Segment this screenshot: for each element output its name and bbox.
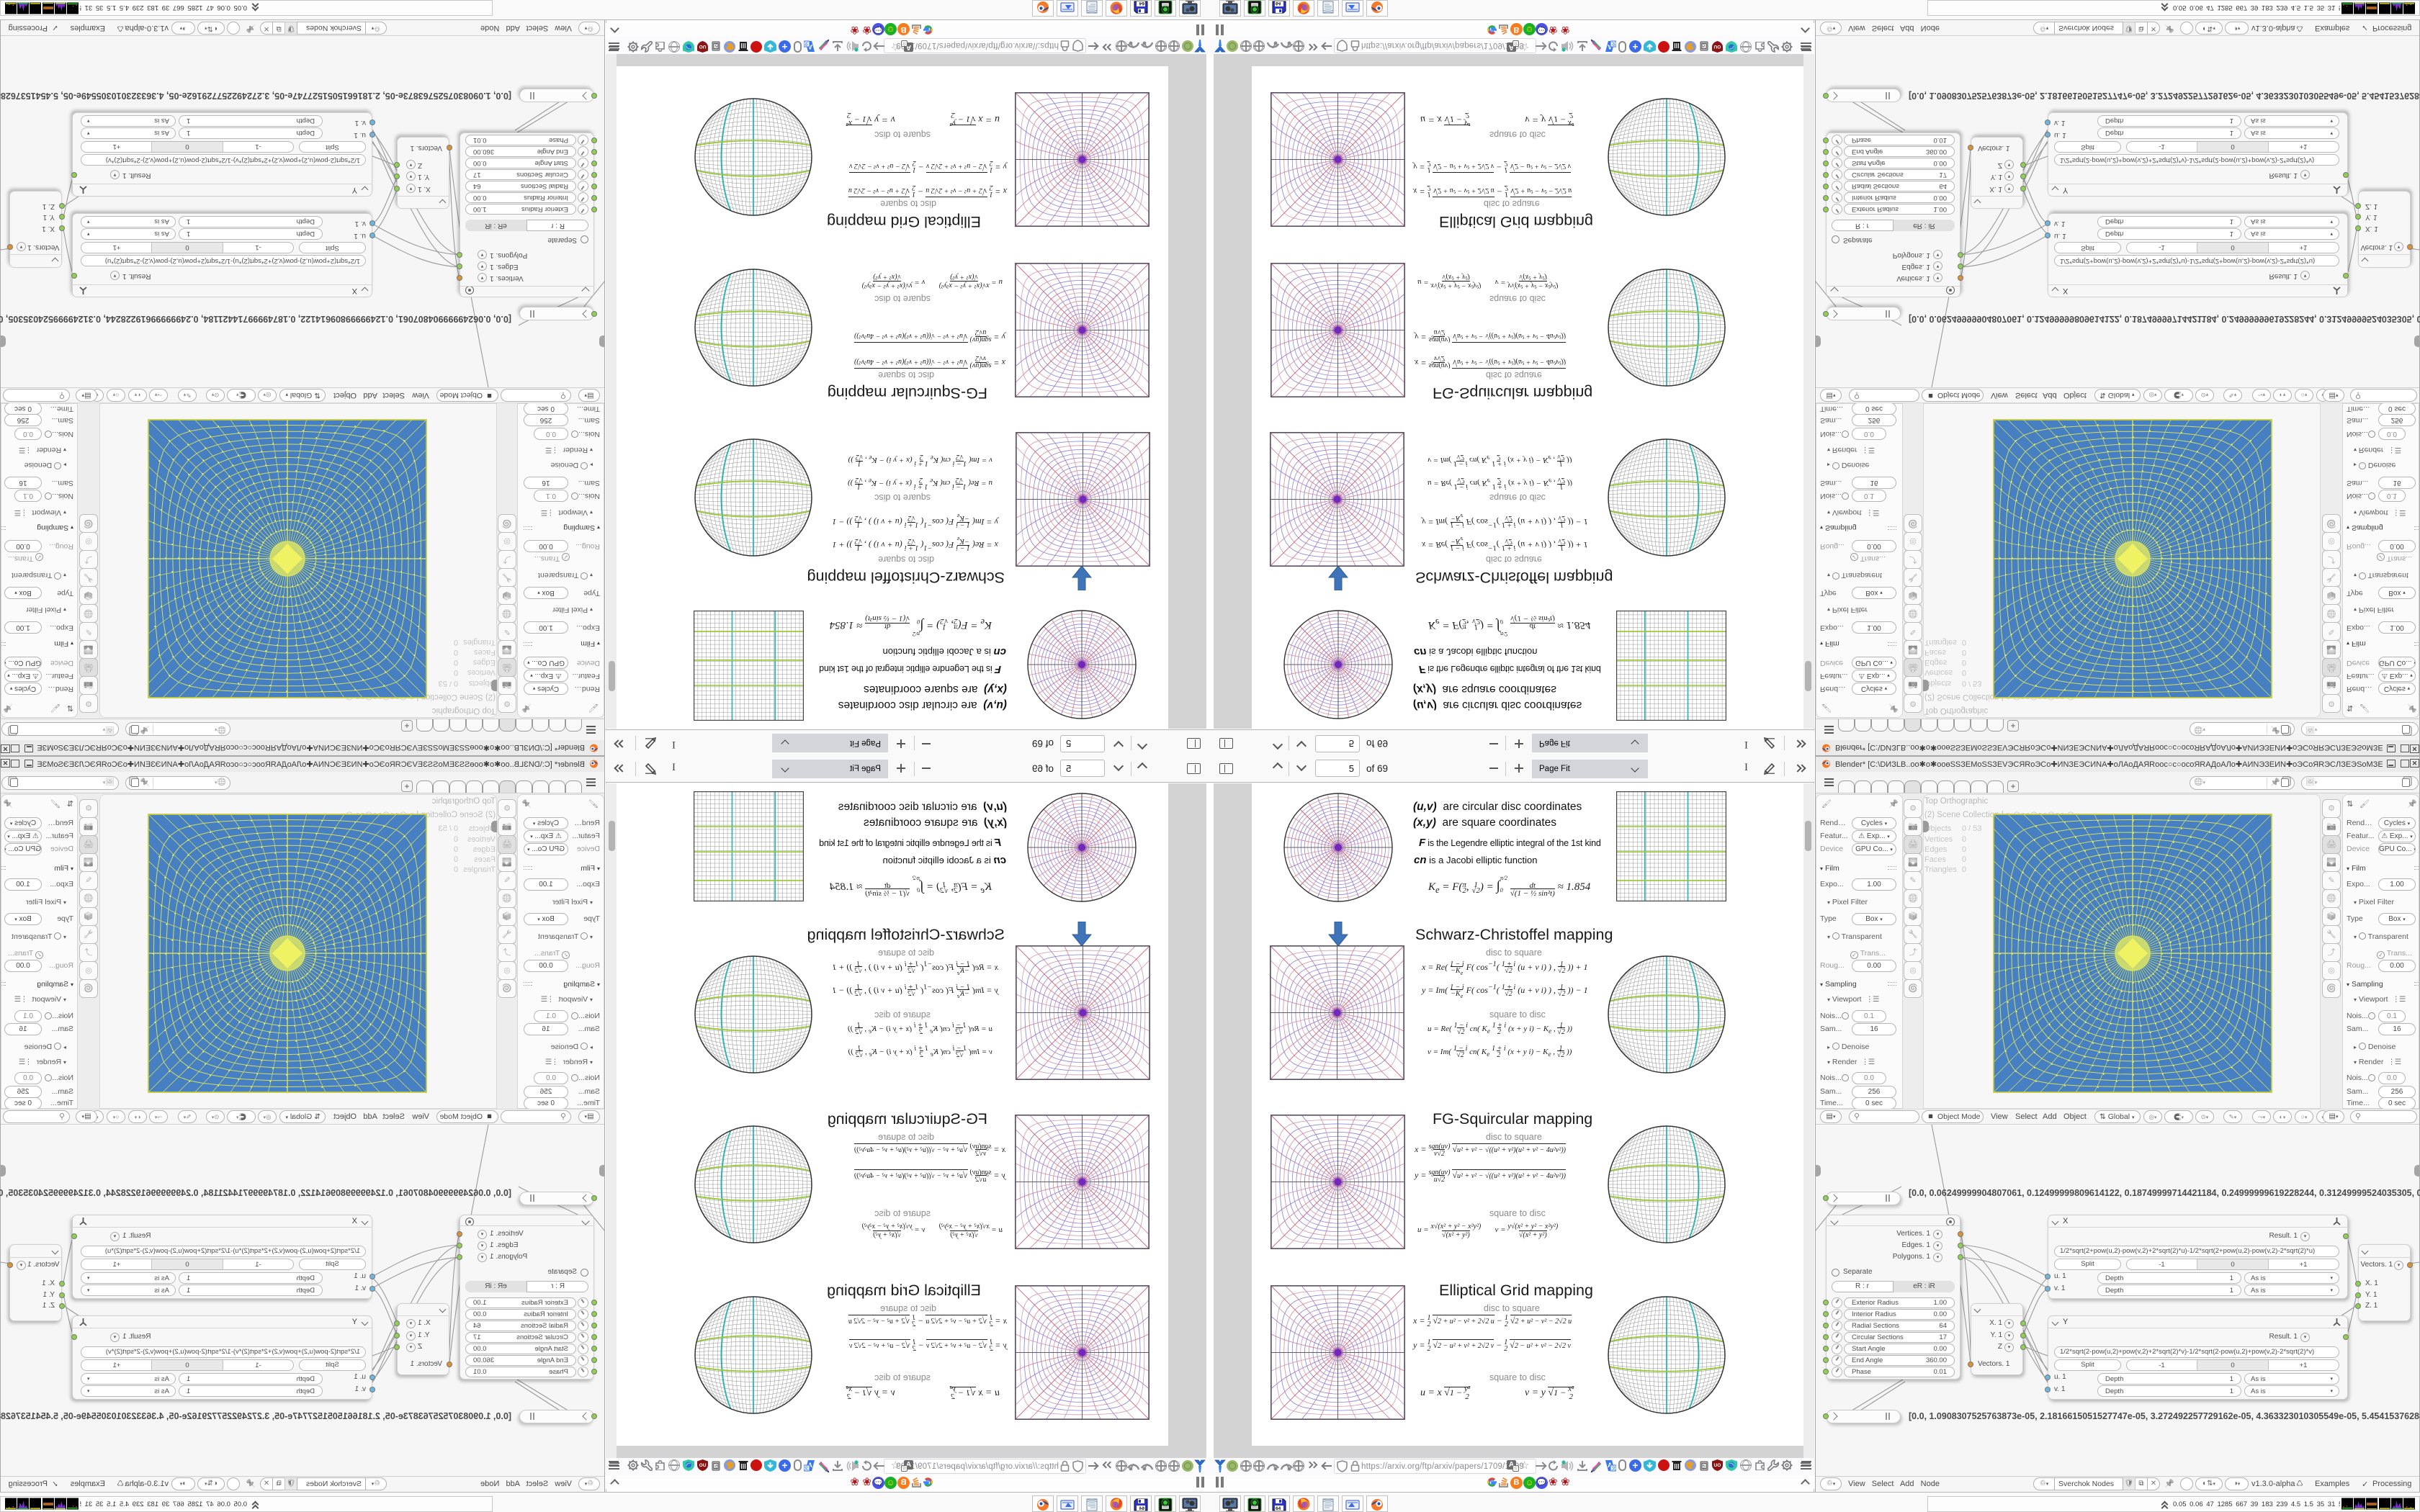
svg-text:文: 文 <box>1612 1466 1616 1472</box>
svg-text:UO: UO <box>699 1463 707 1468</box>
svg-text:5: 5 <box>714 1465 717 1470</box>
svg-text:5: 5 <box>714 43 717 48</box>
svg-text:64: 64 <box>1276 1506 1281 1511</box>
svg-text:UO: UO <box>1714 1463 1721 1468</box>
svg-text:64: 64 <box>1276 1 1281 6</box>
svg-text:文: 文 <box>804 1466 808 1472</box>
svg-text:64: 64 <box>1139 1 1144 6</box>
svg-text:UO: UO <box>1714 44 1721 49</box>
svg-text:UO: UO <box>699 44 707 49</box>
svg-text:64: 64 <box>1139 1506 1144 1511</box>
